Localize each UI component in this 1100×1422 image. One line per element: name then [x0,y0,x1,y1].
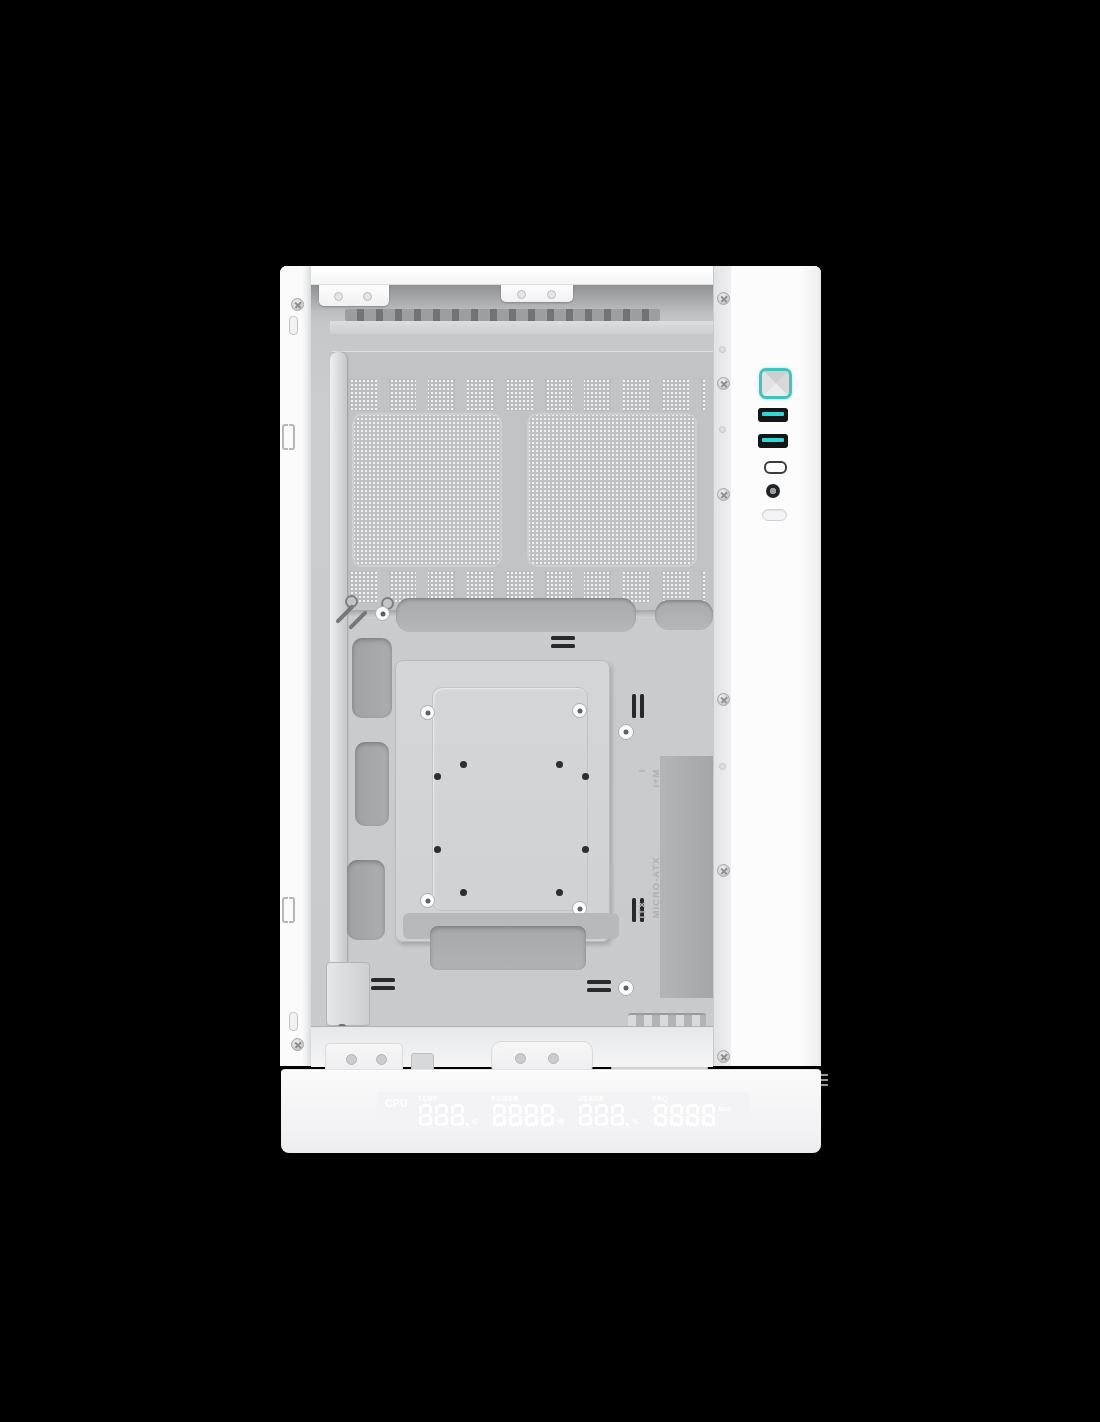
standoff-hole [556,761,563,768]
tab-hole [547,290,556,299]
segment-digit [509,1104,522,1126]
display-group-temp: TEMPC [418,1095,478,1126]
tab-hole [363,292,372,301]
cable-tie-slot [371,978,395,990]
standoff-code: I [636,768,647,772]
display-groups: TEMPCPOWERWUSAGE%FRQMHZ [418,1095,731,1126]
segment-digit [702,1104,715,1126]
panel-screw [291,1038,304,1051]
segment-digit [654,1104,667,1126]
segment-digit [541,1104,554,1126]
front-io-panel [731,266,821,1066]
display-digits: % [578,1104,639,1126]
standoff-hole [434,773,441,780]
front-panel-left-edge [280,266,311,1066]
display-group-power: POWERW [491,1095,564,1126]
display-digits: MHZ [653,1104,731,1126]
usb-a-port-1 [758,408,788,422]
rail-hole [548,1053,559,1064]
chassis-frame-strip [713,266,733,1066]
rail-hole [515,1053,526,1064]
rivet [719,426,726,433]
tube-connector [326,962,370,1026]
tray-text-row: ITX I [636,768,647,918]
display-group-label: FRQ [653,1095,731,1102]
audio-jack [766,484,780,498]
standoff-screw [420,705,435,720]
top-vent-slot [345,309,660,321]
frame-screw [717,292,730,305]
rear-recess [660,756,713,998]
pc-case-body: ITX I MICRO-ATX I+M [280,266,821,1066]
display-unit: % [632,1118,638,1125]
standoff-hole [582,773,589,780]
tray-recess [432,687,588,911]
frame-screw [717,1050,730,1063]
case-floor [311,1026,713,1067]
rivet [719,763,726,770]
cable-tie-slot [587,980,611,992]
motherboard-tray [395,660,610,942]
panel-latch-cutout [282,424,295,446]
motherboard-standoff-markings: ITX I MICRO-ATX I+M [573,830,723,856]
panel-slot [289,316,298,335]
display-digits: W [491,1104,564,1126]
standoff-hole [460,889,467,896]
grommet-screw [375,606,390,621]
segment-digit [525,1104,538,1126]
segment-digit [579,1104,592,1126]
tab-hole [334,292,343,301]
segment-digit [493,1104,506,1126]
segment-digit [419,1104,432,1126]
cable-tie-slot [632,694,644,718]
rail-hole [376,1054,387,1065]
cable-cutout [355,742,389,826]
front-display-band: CPU TEMPCPOWERWUSAGE%FRQMHZ [281,1069,821,1153]
display-group-label: TEMP [418,1095,478,1102]
led-control-button [762,509,787,521]
standoff-hole [460,761,467,768]
frame-screw [717,488,730,501]
cable-tie-slot [551,636,575,648]
edge-texture-mark [821,1074,828,1086]
standoff-hole [556,889,563,896]
mesh-panel-left [352,413,502,567]
segment-digit [611,1104,624,1126]
segment-digit [595,1104,608,1126]
product-photo-stage: ITX I MICRO-ATX I+M [0,0,1100,1422]
display-group-label: USAGE [578,1095,639,1102]
tray-text: ITX I MICRO-ATX I+M [636,768,661,918]
cable-cutout [352,638,392,718]
rivet [719,346,726,353]
grommet-screw [618,980,634,996]
tab-hole [517,290,526,299]
display-unit: MHZ [719,1106,731,1112]
mesh-panel-right [527,413,697,567]
form-factor-label: ITX [636,900,647,918]
segment-digit [670,1104,683,1126]
form-factor-label: MICRO-ATX [650,856,661,918]
panel-latch-cutout [282,897,295,919]
rail-hole [346,1054,357,1065]
cable-cutout [347,860,385,940]
frame-screw [717,693,730,706]
display-unit: C [472,1118,477,1125]
cage-vent-row-top [350,379,705,411]
standoff-screw [420,893,435,908]
grommet-screw [618,724,634,740]
roof-mount-tab [319,284,389,306]
segment-digit [451,1104,464,1126]
display-digits: C [418,1104,478,1126]
tray-text-row: MICRO-ATX I+M [650,768,661,918]
frame-screw [717,377,730,390]
decimal-point [466,1123,470,1127]
top-ledge [330,321,713,334]
frame-screw [717,864,730,877]
usb-a-port-2 [758,434,788,448]
usb-c-port [764,461,787,474]
display-group-usage: USAGE% [578,1095,639,1126]
case-interior: ITX I MICRO-ATX I+M [311,284,713,1066]
display-cpu-label: CPU [385,1098,408,1109]
display-unit: W [557,1118,564,1125]
roof-mount-tab [501,284,573,302]
standoff-screw [572,703,587,718]
cpu-cutout [430,926,586,970]
cable-channel [396,598,636,632]
display-group-label: POWER [491,1095,564,1102]
decimal-point [626,1123,630,1127]
display-group-frq: FRQMHZ [653,1095,731,1126]
segment-digit [435,1104,448,1126]
segment-digit [686,1104,699,1126]
drive-cage [332,351,713,611]
panel-slot [289,1012,298,1031]
standoff-hole [434,846,441,853]
power-button [759,368,792,399]
cable-tube [330,352,347,968]
cable-channel [655,600,713,630]
standoff-code: I+M [650,768,661,787]
status-display: CPU TEMPCPOWERWUSAGE%FRQMHZ [377,1092,749,1131]
panel-screw [291,298,304,311]
